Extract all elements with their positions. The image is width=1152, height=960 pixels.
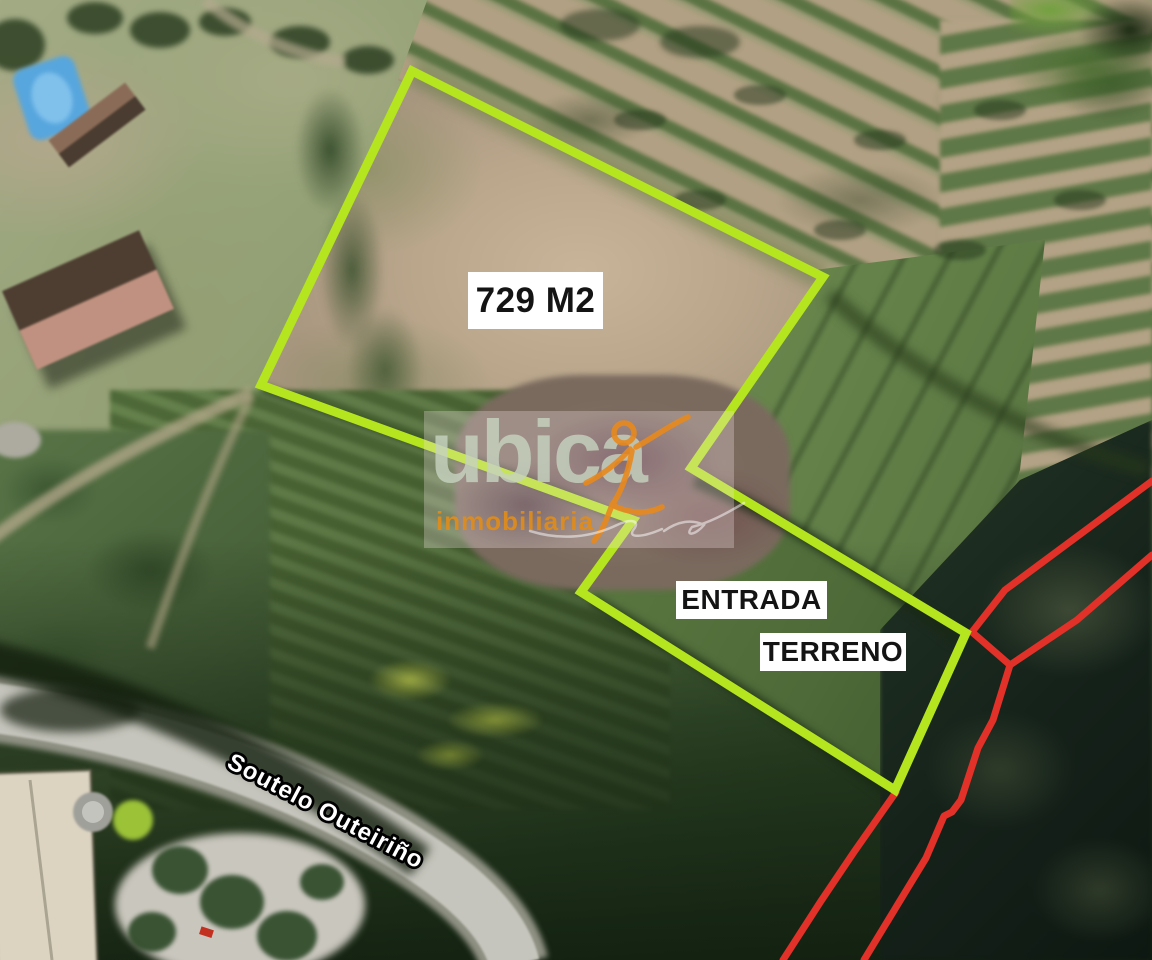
watermark: ubica inmobiliaria xyxy=(424,411,734,548)
entrance-label: ENTRADA xyxy=(676,581,827,619)
aerial-plot-map: Soutelo Outeiriño ubica inmobiliaria xyxy=(0,0,1152,960)
signature-flourish-icon xyxy=(522,491,752,547)
terrain-label: TERRENO xyxy=(760,633,906,671)
area-label: 729 M2 xyxy=(468,272,603,329)
red-boundary-line-a xyxy=(972,481,1152,665)
